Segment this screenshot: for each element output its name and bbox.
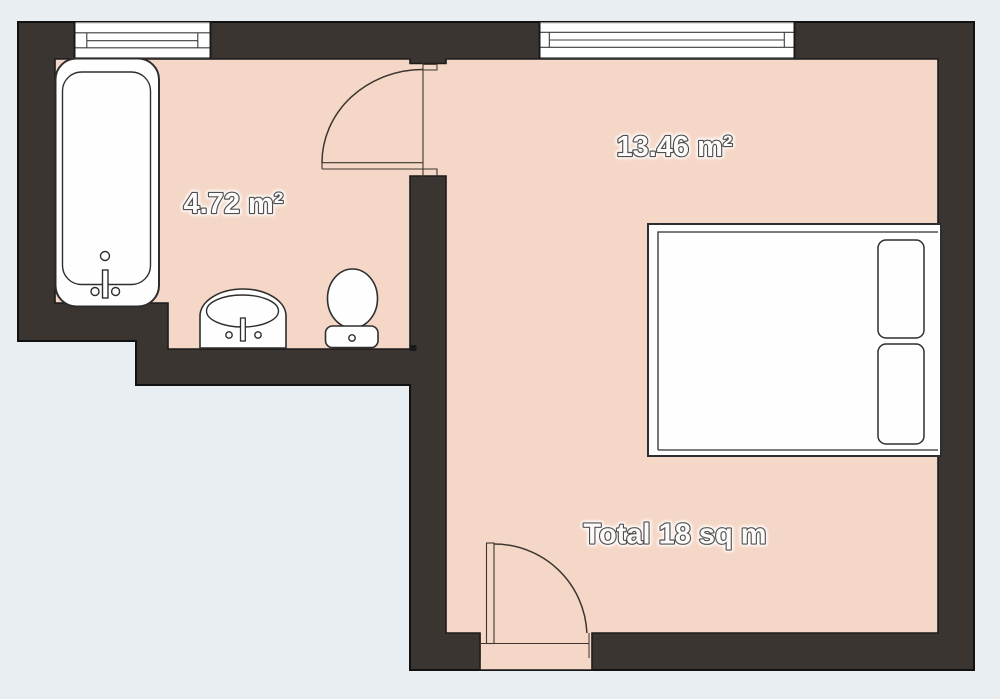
svg-text:4.72 m²: 4.72 m² [184,188,284,220]
svg-text:13.46 m²: 13.46 m² [616,131,732,163]
svg-text:Total 18 sq m: Total 18 sq m [583,519,766,551]
